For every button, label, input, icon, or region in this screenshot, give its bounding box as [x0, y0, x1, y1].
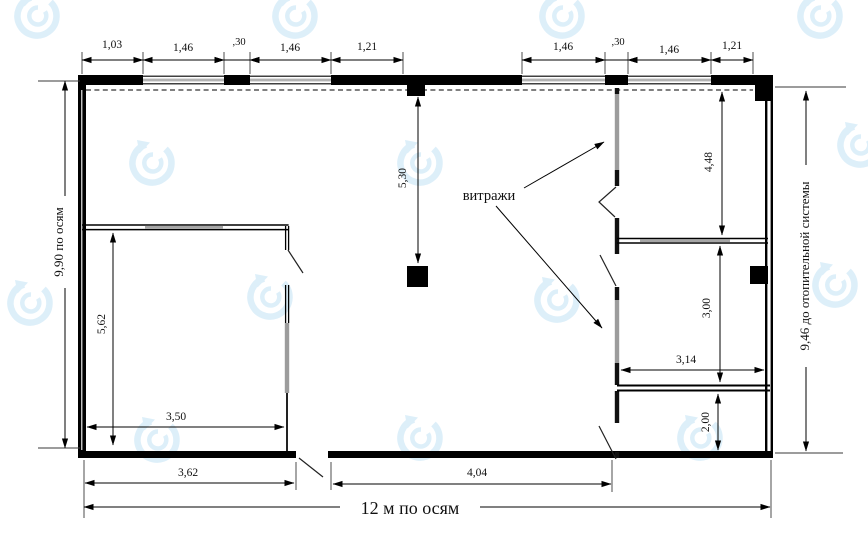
dim-label: ,30 — [611, 37, 624, 48]
dim-label-bottom-mid: 4,04 — [467, 467, 487, 479]
window-opening — [628, 75, 711, 85]
glazing-panel — [615, 94, 619, 170]
dim-label-right-lower: 2,00 — [700, 412, 712, 432]
corner-pier-block — [755, 85, 773, 101]
dim-label-glazing-axis: 5,30 — [397, 168, 409, 188]
right-axis-label: 9,46 до отопительной системы — [797, 181, 812, 350]
bottom-axis-label: 12 м по осям — [361, 498, 460, 518]
dim-label: ,30 — [232, 37, 245, 48]
window-opening — [143, 75, 224, 85]
door-leaf — [288, 250, 303, 273]
columns — [407, 266, 768, 287]
vitrage-annotation: витражи — [463, 188, 516, 204]
dim-label-bottom-left: 3,62 — [178, 467, 198, 479]
doors — [288, 187, 616, 477]
floor-plan-drawing: 1,03 1,46 ,30 1,46 1,21 1,46 ,30 1,46 1,… — [0, 0, 868, 540]
dim-label: 1,46 — [280, 42, 300, 54]
dim-label-right-mid: 3,00 — [701, 298, 713, 318]
dim-label: 1,46 — [659, 44, 679, 56]
free-column — [407, 266, 428, 287]
window-opening — [250, 75, 331, 85]
wall-column — [750, 266, 768, 284]
leader-arrow — [524, 142, 604, 188]
leader-arrow — [496, 206, 602, 328]
left-axis-label: 9,90 по осям — [51, 207, 66, 277]
dim-label-right-width: 3,14 — [676, 354, 696, 366]
glazing-panel — [615, 300, 619, 363]
dim-label-left-room: 5,62 — [96, 314, 108, 334]
dim-label: 1,46 — [173, 42, 193, 54]
dim-label: 1,46 — [553, 41, 573, 53]
dim-label-right-upper: 4,48 — [703, 152, 715, 172]
dim-label: 1,03 — [102, 39, 122, 51]
dim-label: 1,21 — [357, 41, 377, 53]
door-leaf — [600, 255, 616, 286]
glazed-partition — [615, 88, 619, 458]
dim-label-left-width: 3,50 — [166, 411, 186, 423]
door-leaf — [299, 458, 323, 477]
window-opening — [522, 75, 605, 85]
dim-label: 1,21 — [722, 40, 742, 52]
door-leaf — [599, 187, 616, 217]
